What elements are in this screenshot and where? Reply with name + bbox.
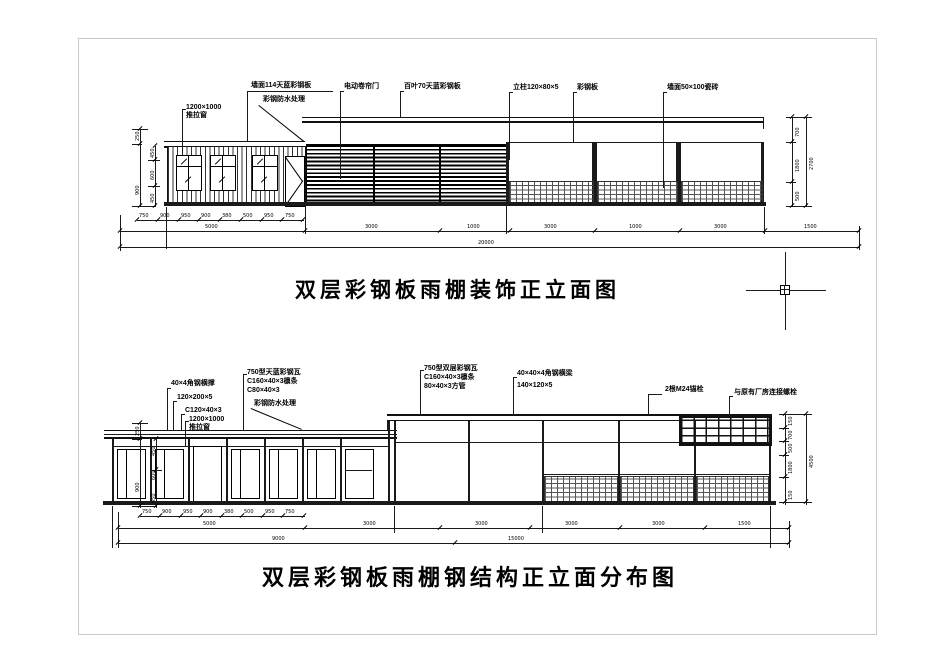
leader-line xyxy=(247,92,248,142)
dim-chain-v xyxy=(806,117,807,207)
dim-label: 380 xyxy=(222,214,232,219)
dim-label: 380 xyxy=(224,510,234,515)
dim-label: 4500 xyxy=(810,455,815,468)
dim-label: 2700 xyxy=(810,157,815,170)
dim-label: 20000 xyxy=(478,241,494,246)
annotation-purlin: C160×40×3檩条 xyxy=(247,378,298,386)
dim-label: 3000 xyxy=(565,522,578,527)
annotation-beam-120: 120×200×5 xyxy=(177,394,212,402)
dim-label: 1500 xyxy=(738,522,751,527)
dim-label: 3000 xyxy=(365,225,378,230)
annotation-anchor: 2根M24锚栓 xyxy=(665,386,704,394)
canopy-end-cap xyxy=(763,117,764,129)
bay-top-line xyxy=(506,142,764,143)
annotation-window-type: 推拉窗 xyxy=(186,112,207,120)
dim-label: 950 xyxy=(181,214,191,219)
leader-line xyxy=(648,394,649,416)
annotation-window-type: 推拉窗 xyxy=(189,424,210,432)
dim-label: 750 xyxy=(285,510,295,515)
window xyxy=(252,155,278,191)
dim-label: 700 xyxy=(796,127,801,137)
dim-label: 900 xyxy=(136,482,141,492)
bottom-view-title: 双层彩钢板雨棚钢结构正立面分布图 xyxy=(255,560,685,592)
dim-chain-main xyxy=(118,528,790,529)
annotation-column: 立柱120×80×5 xyxy=(513,84,559,92)
dim-label: 15000 xyxy=(508,537,524,542)
dim-label: 250 xyxy=(136,131,141,141)
annotation-wall-tile: 墙面50×100瓷砖 xyxy=(667,84,719,92)
column-line xyxy=(226,439,228,502)
dim-ext-v xyxy=(506,204,507,234)
dim-label: 700 xyxy=(789,430,794,440)
window-opening xyxy=(269,449,298,499)
annotation-louver: 百叶70天蓝彩钢板 xyxy=(404,83,461,91)
dim-label: 150 xyxy=(789,490,794,500)
dim-chain-main xyxy=(120,231,859,232)
annotation-roof-sheet-b: 750型双层彩钢瓦 xyxy=(424,365,478,373)
leader-line xyxy=(247,91,333,92)
dim-label: 1800 xyxy=(789,461,794,474)
dim-label: 9000 xyxy=(272,537,285,542)
window-opening xyxy=(117,449,146,499)
annotation-wall-panel: 墙面114天蓝彩钢板 xyxy=(251,82,311,90)
louver-panel xyxy=(440,144,508,205)
leader-line xyxy=(181,414,182,431)
dim-label: 600 xyxy=(152,470,157,480)
leader-line xyxy=(513,377,514,415)
sill-line xyxy=(345,470,372,471)
dim-label: 950 xyxy=(183,510,193,515)
leader-line xyxy=(509,92,510,160)
tile-wall xyxy=(620,476,694,503)
leader-line xyxy=(185,421,186,446)
cad-drawing-screenshot: 墙面114天蓝彩钢板 彩钢防水处理 1200×1000 推拉窗 电动卷帘门 百叶… xyxy=(0,0,950,672)
dim-ext-v xyxy=(112,506,113,548)
annotation-steel-plate: 彩钢板 xyxy=(577,84,598,92)
ground-beam xyxy=(103,501,776,505)
dim-label: 500 xyxy=(796,191,801,201)
dim-label: 900 xyxy=(136,185,141,195)
louver-panel xyxy=(374,144,440,205)
dim-label: 500 xyxy=(789,443,794,453)
dim-label: 250 xyxy=(136,426,141,436)
dim-label: 1000 xyxy=(467,225,480,230)
dim-label: 950 xyxy=(265,510,275,515)
column-line xyxy=(112,439,114,502)
dim-label: 450 xyxy=(151,148,156,158)
annotation-angle-beam: 40×40×4角钢横梁 xyxy=(517,370,573,378)
dim-chain-v xyxy=(806,414,807,505)
column-line xyxy=(388,421,390,502)
dim-label: 5000 xyxy=(205,225,218,230)
tile-beam-line xyxy=(542,474,771,475)
annotation-purlin-b: C160×40×3檩条 xyxy=(424,374,475,382)
column-line xyxy=(188,439,190,502)
dim-chain-v xyxy=(792,117,793,207)
column-line xyxy=(468,421,470,502)
top-view-title: 双层彩钢板雨棚装饰正立面图 xyxy=(295,274,620,304)
dim-label: 1000 xyxy=(629,225,642,230)
column-line xyxy=(340,439,342,502)
door xyxy=(285,156,305,207)
leader-line xyxy=(243,374,244,431)
window-opening xyxy=(307,449,336,499)
left-roof-inner-line xyxy=(104,434,397,435)
dim-label: 750 xyxy=(142,510,152,515)
door-opening xyxy=(193,446,222,504)
annotation-waterproof: 彩钢防水处理 xyxy=(263,96,305,104)
dim-label: 900 xyxy=(160,214,170,219)
column-line xyxy=(264,439,266,502)
leader-line xyxy=(173,401,174,431)
column-line xyxy=(302,439,304,502)
dim-label: 750 xyxy=(139,214,149,219)
window-opening xyxy=(345,449,374,499)
dim-label: 450 xyxy=(152,446,157,456)
dim-label: 3000 xyxy=(475,522,488,527)
crosshair-inner-v xyxy=(784,285,785,295)
leader-line xyxy=(340,91,341,179)
dim-label: 600 xyxy=(151,170,156,180)
dim-ext-v xyxy=(770,506,771,548)
dim-label: 3000 xyxy=(652,522,665,527)
annotation-rolling-door: 电动卷帘门 xyxy=(344,83,379,91)
leader-line xyxy=(663,92,664,188)
window xyxy=(210,155,236,191)
column-line xyxy=(394,421,396,502)
annotation-beam-140: 140×120×5 xyxy=(517,382,552,390)
leader-line xyxy=(729,396,730,416)
window-opening xyxy=(231,449,260,499)
dim-label: 1500 xyxy=(804,225,817,230)
dim-label: 900 xyxy=(162,510,172,515)
dim-label: 3000 xyxy=(544,225,557,230)
leader-line xyxy=(420,370,421,415)
dim-label: 900 xyxy=(203,510,213,515)
leader-line xyxy=(573,92,574,143)
leader-line xyxy=(648,394,662,395)
dim-label: 900 xyxy=(201,214,211,219)
dim-label: 750 xyxy=(285,214,295,219)
annotation-waterproof: 彩钢防水处理 xyxy=(254,400,296,408)
annotation-tube: C80×40×3 xyxy=(247,387,280,395)
tile-wall xyxy=(696,476,769,503)
window-opening xyxy=(155,449,184,499)
annotation-roof-sheet: 750型天蓝彩钢瓦 xyxy=(247,369,301,377)
tile-wall xyxy=(544,476,618,503)
annotation-connect: 与原有厂房连接螺栓 xyxy=(734,389,797,397)
annotation-purlin-c120: C120×40×3 xyxy=(185,407,222,415)
annotation-angle-brace: 40×4角钢横撑 xyxy=(171,380,215,388)
annotation-tube-b: 80×40×3方管 xyxy=(424,383,466,391)
dim-label: 450 xyxy=(151,193,156,203)
leader-line xyxy=(400,91,401,118)
crosshair-center xyxy=(780,285,790,295)
sheet-frame xyxy=(78,38,877,635)
crosshair-inner-h xyxy=(780,289,790,290)
dim-label: 500 xyxy=(243,214,253,219)
ground-beam xyxy=(164,202,766,206)
dim-label: 3000 xyxy=(714,225,727,230)
dim-label: 500 xyxy=(244,510,254,515)
dim-label: 150 xyxy=(789,416,794,426)
dim-chain-overall xyxy=(120,247,859,248)
canopy-fascia xyxy=(302,117,764,123)
leader-line xyxy=(182,109,183,155)
dim-label: 1800 xyxy=(796,159,801,172)
dim-label: 950 xyxy=(264,214,274,219)
steel-grid-frame xyxy=(679,416,772,446)
window xyxy=(176,155,202,191)
leader-line xyxy=(167,388,168,431)
dim-label: 3000 xyxy=(363,522,376,527)
dim-label: 5000 xyxy=(203,522,216,527)
dim-label: 450 xyxy=(152,493,157,503)
